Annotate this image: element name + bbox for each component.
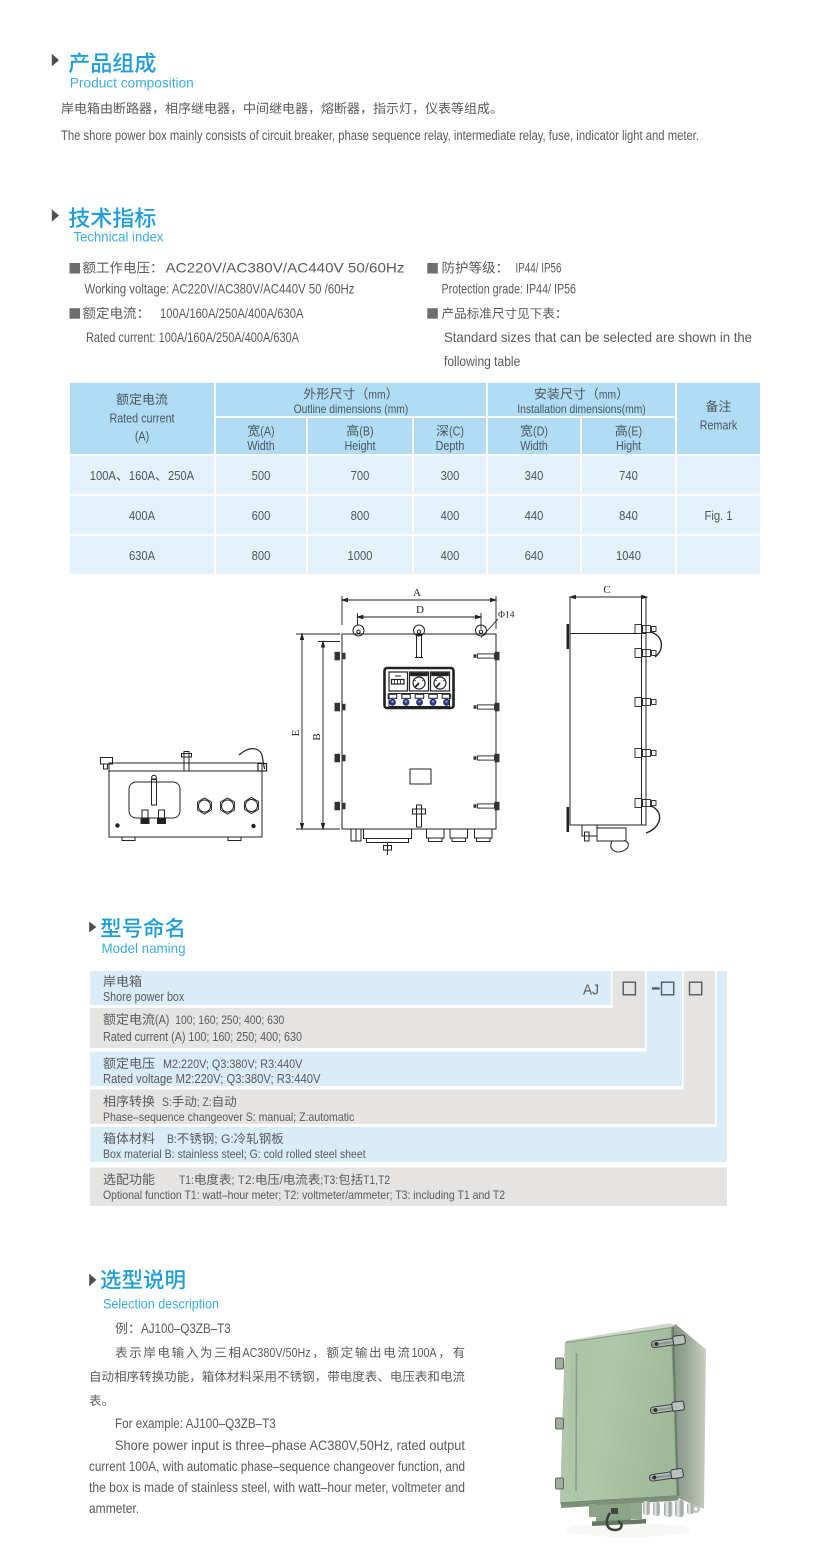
svg-text:AC380V/50Hz: AC380V/50Hz [243, 1346, 311, 1360]
svg-text:(E): (E) [628, 425, 642, 439]
svg-text:1000: 1000 [348, 548, 373, 563]
svg-text:AJ100–Q3ZB–T3: AJ100–Q3ZB–T3 [141, 1321, 231, 1336]
svg-text:840: 840 [619, 508, 638, 523]
svg-text:M2:220V; Q3:380V; R3:440V: M2:220V; Q3:380V; R3:440V [163, 1057, 302, 1071]
svg-text:630A: 630A [129, 548, 155, 563]
svg-text:640: 640 [525, 548, 544, 563]
svg-text:Width: Width [520, 439, 548, 453]
svg-text:For example: AJ100–Q3ZB–T3: For example: AJ100–Q3ZB–T3 [115, 1416, 276, 1431]
svg-text:Phase–sequence changeover S:: Phase–sequence changeover S: manual; Z:a… [103, 1110, 354, 1124]
svg-text:A: A [413, 587, 421, 599]
svg-text:400A: 400A [129, 508, 155, 523]
svg-text:Rated current: Rated current [109, 412, 175, 426]
svg-text:740: 740 [619, 468, 638, 483]
svg-text:B:: B: [167, 1132, 177, 1146]
svg-text:Working voltage: AC220V/AC380V: Working voltage: AC220V/AC380V/AC440V 50… [85, 281, 355, 297]
svg-text:Φ14: Φ14 [498, 611, 515, 621]
svg-text:Optional function T1: watt–h: Optional function T1: watt–hour meter; T… [103, 1188, 505, 1202]
svg-text:Product composition: Product composition [70, 75, 194, 91]
svg-text:(A): (A) [155, 1013, 169, 1027]
svg-text:;T3:: ;T3: [320, 1173, 338, 1187]
svg-text:current 100A, with automatic p: current 100A, with automatic phase–seque… [89, 1459, 465, 1474]
svg-text:(A): (A) [135, 430, 149, 444]
svg-text:ammeter.: ammeter. [89, 1501, 139, 1516]
svg-text:600: 600 [252, 508, 271, 523]
svg-text:Width: Width [247, 439, 275, 453]
svg-text:250A: 250A [168, 468, 194, 483]
svg-text:E: E [290, 729, 302, 736]
svg-text:Technical index: Technical index [74, 229, 164, 245]
svg-text:; Z:: ; Z: [197, 1095, 212, 1109]
svg-text:340: 340 [525, 468, 544, 483]
svg-text:800: 800 [351, 508, 370, 523]
svg-text:Shore power box: Shore power box [103, 990, 185, 1004]
svg-text:IP44/ IP56: IP44/ IP56 [516, 260, 562, 276]
svg-text:100A: 100A [412, 1346, 438, 1360]
svg-text:; T2:: ; T2: [231, 1173, 255, 1187]
svg-text:440: 440 [525, 508, 544, 523]
svg-text:C: C [603, 584, 610, 596]
svg-text:following table: following table [444, 353, 520, 369]
svg-text:Shore power input is three: Shore power input is three–phase AC380V,… [115, 1438, 465, 1453]
svg-text:Outline dimensions (mm): Outline dimensions (mm) [294, 402, 409, 416]
svg-text:mm: mm [368, 388, 385, 402]
svg-text:100A: 100A [90, 468, 116, 483]
svg-text:100A/160A/250A/400A/630A: 100A/160A/250A/400A/630A [160, 305, 304, 321]
svg-text:(D): (D) [533, 425, 548, 439]
svg-text:Box material B: stainless st: Box material B: stainless steel; G: cold… [103, 1147, 366, 1161]
svg-text:800: 800 [252, 548, 271, 563]
svg-text:mm: mm [599, 388, 616, 402]
svg-text:Selection description: Selection description [103, 1296, 219, 1312]
svg-text:(C): (C) [449, 425, 464, 439]
svg-text:T1:: T1: [179, 1173, 194, 1187]
svg-text:Rated voltage M2:220V; Q3:38: Rated voltage M2:220V; Q3:380V; R3:440V [103, 1072, 321, 1086]
svg-text:Protection grade: IP44/ IP56: Protection grade: IP44/ IP56 [442, 281, 577, 297]
svg-text:Depth: Depth [436, 439, 465, 453]
svg-text:Standard sizes that can be sel: Standard sizes that can be selected are … [444, 329, 752, 345]
svg-text:; G:: ; G: [214, 1132, 234, 1146]
svg-text:400: 400 [441, 548, 460, 563]
svg-text:Fig. 1: Fig. 1 [705, 508, 733, 523]
svg-text:(B): (B) [359, 425, 373, 439]
svg-text:D: D [416, 604, 424, 616]
svg-text:500: 500 [252, 468, 271, 483]
svg-text:Height: Height [344, 439, 376, 453]
svg-text:B: B [311, 733, 323, 740]
svg-text:AC220V/AC380V/AC440V 50/60Hz: AC220V/AC380V/AC440V 50/60Hz [166, 260, 405, 276]
svg-text:Remark: Remark [700, 419, 738, 433]
svg-text:Model naming: Model naming [102, 940, 186, 956]
svg-text:(A): (A) [260, 425, 274, 439]
svg-text:The shore power box mainly con: The shore power box mainly consists of c… [61, 128, 699, 144]
svg-text:160A: 160A [129, 468, 155, 483]
svg-text:AJ: AJ [583, 981, 599, 998]
svg-text:1040: 1040 [616, 548, 641, 563]
svg-text:T1,T2: T1,T2 [363, 1173, 390, 1187]
svg-text:Rated current: 100A/160A/250A/: Rated current: 100A/160A/250A/400A/630A [86, 329, 300, 345]
svg-text:Rated current (A) 100; 160; 25: Rated current (A) 100; 160; 250; 400; 63… [103, 1030, 302, 1044]
svg-text:300: 300 [441, 468, 460, 483]
svg-text:Installation dimensions(mm): Installation dimensions(mm) [517, 402, 646, 416]
svg-text:700: 700 [351, 468, 370, 483]
svg-text:400: 400 [441, 508, 460, 523]
svg-text:the box is made of stainless s: the box is made of stainless steel, with… [89, 1480, 465, 1495]
svg-text:S:: S: [162, 1095, 172, 1109]
svg-text:Hight: Hight [616, 439, 642, 453]
svg-text:100; 160; 250; 400; 630: 100; 160; 250; 400; 630 [175, 1013, 284, 1027]
